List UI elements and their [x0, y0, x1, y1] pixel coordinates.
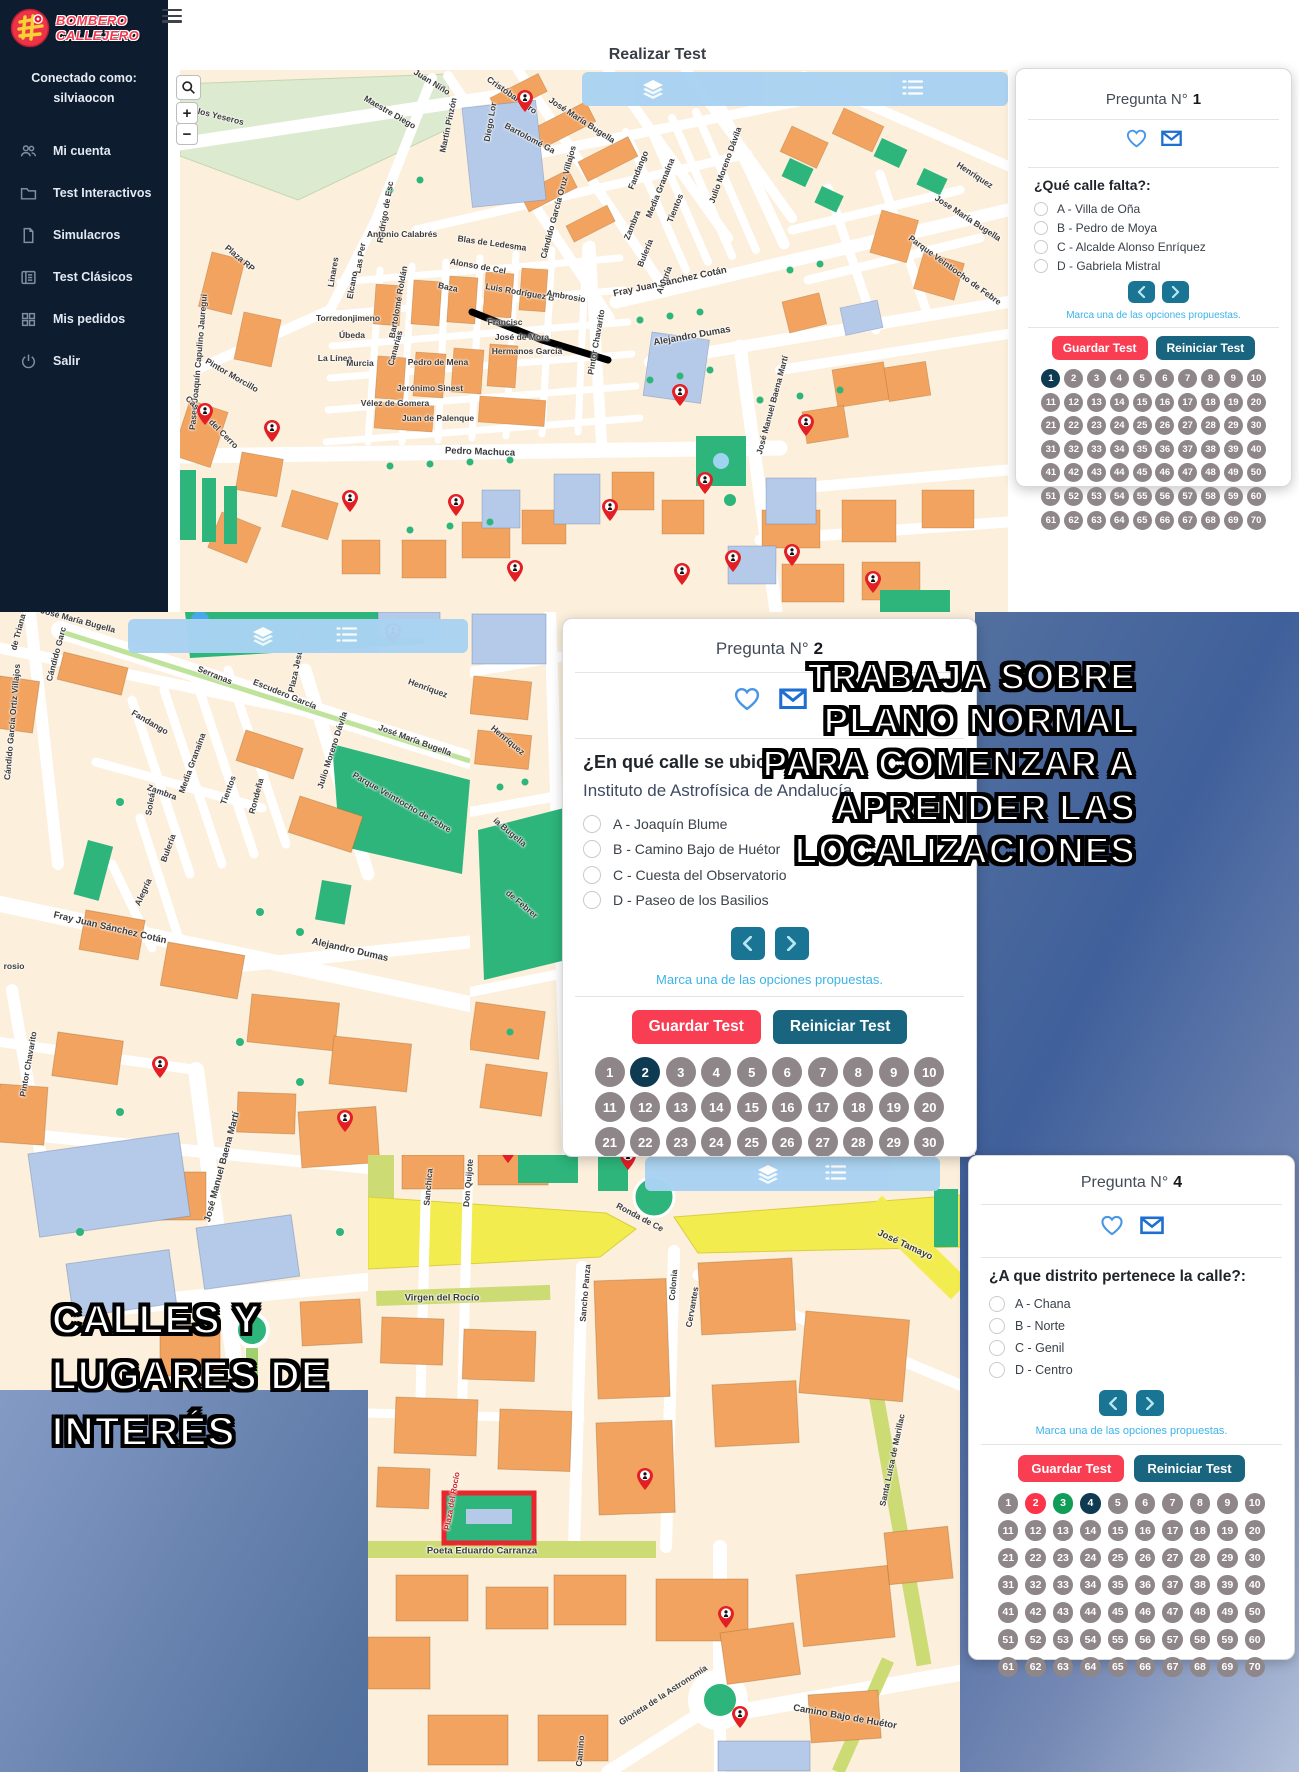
question-number-bubble[interactable]: 58	[1190, 1629, 1211, 1650]
radio-icon[interactable]	[583, 866, 601, 884]
option-label: D - Gabriela Mistral	[1057, 259, 1160, 273]
headline-line: PARA COMENZAR A	[763, 742, 1136, 786]
question-number-bubble[interactable]: 42	[1025, 1602, 1046, 1623]
question-number-bubble[interactable]: 5	[1133, 369, 1152, 388]
answer-option[interactable]: D - Paseo de los Basilios	[583, 888, 976, 914]
radio-icon[interactable]	[1034, 202, 1048, 216]
question-number-bubble[interactable]: 9	[1217, 1493, 1238, 1514]
question-number-bubble[interactable]: 69	[1224, 511, 1243, 530]
reset-test-button[interactable]: Reiniciar Test	[773, 1010, 908, 1044]
question-number-bubble[interactable]: 33	[1087, 440, 1106, 459]
question-number-bubble[interactable]: 33	[1053, 1575, 1074, 1596]
question-number-bubble[interactable]: 53	[1087, 487, 1106, 506]
question-number-bubble[interactable]: 57	[1178, 487, 1197, 506]
question-number-bubble[interactable]: 23	[1053, 1548, 1074, 1569]
question-list-icon[interactable]	[825, 1164, 847, 1184]
sidebar-item-simulacros[interactable]: Simulacros	[0, 214, 168, 256]
favorite-icon[interactable]	[733, 687, 761, 711]
question-number-bubble[interactable]: 34	[1080, 1575, 1101, 1596]
question-number-bubble[interactable]: 30	[1245, 1548, 1266, 1569]
radio-icon[interactable]	[989, 1362, 1005, 1378]
question-number-bubble[interactable]: 47	[1162, 1602, 1183, 1623]
question-number-bubble[interactable]: 17	[1178, 393, 1197, 412]
question-number-bubble[interactable]: 15	[1108, 1520, 1129, 1541]
question-number-bubble[interactable]: 9	[879, 1057, 909, 1087]
question-number-bubble[interactable]: 2	[630, 1057, 660, 1087]
question-number-bubble[interactable]: 20	[914, 1092, 944, 1122]
question-number-bubble[interactable]: 2	[1064, 369, 1083, 388]
question-number-bubble[interactable]: 65	[1133, 511, 1152, 530]
question-number-bubble[interactable]: 16	[1135, 1520, 1156, 1541]
favorite-icon[interactable]	[1100, 1215, 1124, 1236]
map-art	[368, 1155, 960, 1772]
radio-icon[interactable]	[1034, 221, 1048, 235]
street-label: Antonio Calabrés	[367, 229, 437, 239]
question-number-bubble[interactable]: 13	[666, 1092, 696, 1122]
question-number-bubble[interactable]: 59	[1217, 1629, 1238, 1650]
question-number-bubble[interactable]: 50	[1245, 1602, 1266, 1623]
question-number-bubble[interactable]: 28	[1190, 1548, 1211, 1569]
question-number-bubble[interactable]: 24	[1080, 1548, 1101, 1569]
poi-marker[interactable]	[718, 1606, 734, 1628]
question-number-bubble[interactable]: 11	[595, 1092, 625, 1122]
connected-as: Conectado como: silviaocon	[0, 68, 168, 108]
question-number-bubble[interactable]: 1	[595, 1057, 625, 1087]
question-number-bubble[interactable]: 16	[772, 1092, 802, 1122]
question-number-bubble[interactable]: 48	[1201, 463, 1220, 482]
question-number-bubble[interactable]: 23	[666, 1127, 696, 1157]
question-number-bubble[interactable]: 70	[1247, 511, 1266, 530]
answer-option[interactable]: B - Norte	[989, 1315, 1294, 1337]
question-number-bubble[interactable]: 48	[1190, 1602, 1211, 1623]
question-number-bubble[interactable]: 12	[1064, 393, 1083, 412]
layers-icon[interactable]	[757, 1164, 779, 1184]
question-number-bubble[interactable]: 10	[1245, 1493, 1266, 1514]
question-number-bubble[interactable]: 2	[1025, 1493, 1046, 1514]
map-canvas-bottom[interactable]: Ronda de CeJosé TamayoSanchicaDon Quijot…	[368, 1155, 960, 1772]
question-number-bubble[interactable]: 41	[1041, 463, 1060, 482]
question-number-bubble[interactable]: 43	[1087, 463, 1106, 482]
poi-marker[interactable]	[672, 384, 688, 406]
question-number-bubble[interactable]: 54	[1110, 487, 1129, 506]
question-number-bubble[interactable]: 49	[1224, 463, 1243, 482]
question-number-bubble[interactable]: 19	[879, 1092, 909, 1122]
question-number-bubble[interactable]: 11	[1041, 393, 1060, 412]
street-label: Hermanos García	[492, 346, 562, 356]
poi-marker[interactable]	[448, 494, 464, 516]
sidebar-item-label: Simulacros	[53, 228, 120, 242]
save-test-button[interactable]: Guardar Test	[1018, 1455, 1124, 1482]
brand-text: BOMBERO CALLEJERO	[56, 13, 139, 43]
question-number-bubble[interactable]: 10	[914, 1057, 944, 1087]
question-number-bubble[interactable]: 55	[1133, 487, 1152, 506]
question-number-bubble[interactable]: 7	[1178, 369, 1197, 388]
question-number-bubble[interactable]: 64	[1080, 1657, 1101, 1678]
headline-line: INTERÉS	[52, 1404, 329, 1460]
option-label: D - Centro	[1015, 1363, 1073, 1377]
question-number-bubble[interactable]: 5	[737, 1057, 767, 1087]
question-panel-1: Pregunta N°1 ¿Qué calle falta?: A - Vill…	[1015, 68, 1292, 487]
question-number-bubble[interactable]: 21	[595, 1127, 625, 1157]
question-number-bubble[interactable]: 49	[1217, 1602, 1238, 1623]
sidebar-item-label: Test Interactivos	[53, 186, 151, 200]
question-number-bubble[interactable]: 5	[1108, 1493, 1129, 1514]
save-test-button[interactable]: Guardar Test	[632, 1010, 761, 1044]
question-number-bubble[interactable]: 63	[1053, 1657, 1074, 1678]
question-number-bubble[interactable]: 61	[1041, 511, 1060, 530]
question-number-bubble[interactable]: 14	[1080, 1520, 1101, 1541]
poi-marker[interactable]	[342, 490, 358, 512]
question-number-bubble[interactable]: 47	[1178, 463, 1197, 482]
question-number-bubble[interactable]: 7	[1162, 1493, 1183, 1514]
answer-option[interactable]: D - Centro	[989, 1359, 1294, 1381]
question-number-bubble[interactable]: 8	[1201, 369, 1220, 388]
question-number-bubble[interactable]: 64	[1110, 511, 1129, 530]
question-number-bubble[interactable]: 9	[1224, 369, 1243, 388]
poi-marker[interactable]	[637, 1468, 653, 1490]
headline-line: CALLES Y	[52, 1292, 329, 1348]
question-number-bubble[interactable]: 13	[1087, 393, 1106, 412]
question-number-bubble[interactable]: 16	[1155, 393, 1174, 412]
question-number-bubble[interactable]: 6	[1135, 1493, 1156, 1514]
question-number-bubble[interactable]: 14	[1110, 393, 1129, 412]
question-number-bubble[interactable]: 34	[1110, 440, 1129, 459]
question-number-bubble[interactable]: 6	[772, 1057, 802, 1087]
question-number-bubble[interactable]: 37	[1162, 1575, 1183, 1596]
sidebar-item-label: Test Clásicos	[53, 270, 133, 284]
question-number-bubble[interactable]: 1	[1041, 369, 1060, 388]
question-number-bubble[interactable]: 36	[1135, 1575, 1156, 1596]
sidebar: BOMBERO CALLEJERO Conectado como: silvia…	[0, 0, 168, 612]
question-number-bubble[interactable]: 59	[1224, 487, 1243, 506]
question-number-bubble[interactable]: 22	[1025, 1548, 1046, 1569]
question-number-bubble[interactable]: 44	[1110, 463, 1129, 482]
question-number-bubble[interactable]: 68	[1190, 1657, 1211, 1678]
question-number-bubble[interactable]: 27	[1162, 1548, 1183, 1569]
question-number-bubble[interactable]: 11	[998, 1520, 1019, 1541]
street-label: Pedro de Mena	[408, 357, 468, 367]
prev-question-button[interactable]	[1128, 281, 1155, 303]
question-number-bubble[interactable]: 63	[1087, 511, 1106, 530]
question-number-bubble[interactable]: 38	[1201, 440, 1220, 459]
radio-icon[interactable]	[1034, 240, 1048, 254]
question-number-bubble[interactable]: 31	[1041, 440, 1060, 459]
answer-option[interactable]: A - Villa de Oña	[1034, 199, 1291, 218]
question-number-bubble[interactable]: 12	[630, 1092, 660, 1122]
page-title: Realizar Test	[168, 46, 1147, 64]
reset-test-button[interactable]: Reiniciar Test	[1156, 336, 1256, 360]
logo-icon	[10, 8, 50, 48]
question-number-bubble[interactable]: 10	[1247, 369, 1266, 388]
zoom-in-button[interactable]: +	[176, 102, 198, 124]
file-icon	[20, 227, 37, 244]
radio-icon[interactable]	[583, 891, 601, 909]
question-number-bubble[interactable]: 22	[630, 1127, 660, 1157]
question-list-icon[interactable]	[902, 79, 924, 99]
sidebar-item-mis-pedidos[interactable]: Mis pedidos	[0, 298, 168, 340]
question-number-bubble[interactable]: 65	[1108, 1657, 1129, 1678]
question-number-bubble[interactable]: 28	[1201, 416, 1220, 435]
headline-line: LUGARES DE	[52, 1348, 329, 1404]
question-number-bubble[interactable]: 60	[1245, 1629, 1266, 1650]
question-number-bubble[interactable]: 30	[1247, 416, 1266, 435]
listalt-icon	[20, 269, 37, 286]
question-number-bubble[interactable]: 66	[1155, 511, 1174, 530]
collage-page: BOMBERO CALLEJERO Conectado como: silvia…	[0, 0, 1299, 1772]
question-number-bubble[interactable]: 7	[808, 1057, 838, 1087]
folder-icon	[20, 185, 37, 202]
question-number-bubble[interactable]: 20	[1247, 393, 1266, 412]
next-question-button[interactable]	[1136, 1390, 1164, 1416]
question-number-bubble[interactable]: 60	[1247, 487, 1266, 506]
question-number-bubble[interactable]: 58	[1201, 487, 1220, 506]
question-number-bubble[interactable]: 54	[1080, 1629, 1101, 1650]
poi-marker[interactable]	[152, 1056, 168, 1078]
option-label: C - Genil	[1015, 1341, 1064, 1355]
question-number-bubble[interactable]: 23	[1087, 416, 1106, 435]
question-number-bubble[interactable]: 26	[1155, 416, 1174, 435]
sidebar-item-test-clásicos[interactable]: Test Clásicos	[0, 256, 168, 298]
radio-icon[interactable]	[989, 1318, 1005, 1334]
street-label: Jerónimo Sinest	[397, 383, 463, 393]
question-number-bubble[interactable]: 39	[1217, 1575, 1238, 1596]
question-number-bubble[interactable]: 40	[1247, 440, 1266, 459]
poi-marker[interactable]	[507, 560, 523, 582]
layers-icon[interactable]	[642, 79, 664, 99]
question-number-bubble[interactable]: 4	[1080, 1493, 1101, 1514]
poi-marker[interactable]	[264, 420, 280, 442]
question-number-bubble[interactable]: 19	[1217, 1520, 1238, 1541]
map-search-button[interactable]	[176, 75, 201, 100]
question-number-bubble[interactable]: 53	[1053, 1629, 1074, 1650]
question-number-bubble[interactable]: 32	[1025, 1575, 1046, 1596]
answer-option[interactable]: A - Chana	[989, 1293, 1294, 1315]
layers-icon[interactable]	[252, 626, 274, 646]
question-number-bubble[interactable]: 37	[1178, 440, 1197, 459]
question-number-bubble[interactable]: 43	[1053, 1602, 1074, 1623]
question-number-bubble[interactable]: 3	[666, 1057, 696, 1087]
mail-icon[interactable]	[1140, 1215, 1164, 1236]
poi-marker[interactable]	[674, 563, 690, 585]
question-number-bubble[interactable]: 24	[1110, 416, 1129, 435]
question-number-bubble[interactable]: 19	[1224, 393, 1243, 412]
question-number-bubble[interactable]: 27	[808, 1127, 838, 1157]
question-number-bubble[interactable]: 46	[1135, 1602, 1156, 1623]
prev-question-button[interactable]	[731, 927, 765, 960]
question-number-bubble[interactable]: 29	[1217, 1548, 1238, 1569]
question-number-bubble[interactable]: 62	[1064, 511, 1083, 530]
question-number-bubble[interactable]: 18	[1190, 1520, 1211, 1541]
question-number-bubble[interactable]: 67	[1178, 511, 1197, 530]
question-number-bubble[interactable]: 70	[1245, 1657, 1266, 1678]
question-number-bubble[interactable]: 51	[1041, 487, 1060, 506]
radio-icon[interactable]	[1034, 259, 1048, 273]
prev-question-button[interactable]	[1099, 1390, 1127, 1416]
poi-marker[interactable]	[620, 1155, 636, 1170]
question-number-bubble[interactable]: 62	[1025, 1657, 1046, 1678]
question-number-bubble[interactable]: 4	[701, 1057, 731, 1087]
option-label: B - Camino Bajo de Huétor	[613, 841, 780, 857]
question-number-bubble[interactable]: 18	[1201, 393, 1220, 412]
question-text: ¿A que distrito pertenece la calle?:	[989, 1268, 1294, 1286]
question-number-bubble[interactable]: 69	[1217, 1657, 1238, 1678]
option-label: A - Chana	[1015, 1297, 1071, 1311]
option-label: C - Alcalde Alonso Enríquez	[1057, 240, 1206, 254]
question-number-bubble[interactable]: 12	[1025, 1520, 1046, 1541]
poi-marker[interactable]	[500, 1155, 516, 1163]
question-panel-title: Pregunta N°1	[1016, 91, 1291, 108]
question-number-bubble[interactable]: 45	[1133, 463, 1152, 482]
poi-marker[interactable]	[602, 499, 618, 521]
question-number-bubble[interactable]: 35	[1133, 440, 1152, 459]
question-number-bubble[interactable]: 14	[701, 1092, 731, 1122]
hint-text: Marca una de las opciones propuestas.	[1016, 310, 1291, 321]
question-number-bubble[interactable]: 57	[1162, 1629, 1183, 1650]
question-number-bubble[interactable]: 20	[1245, 1520, 1266, 1541]
question-number-bubble[interactable]: 56	[1155, 487, 1174, 506]
app-logo[interactable]: BOMBERO CALLEJERO	[0, 0, 168, 56]
poi-marker[interactable]	[697, 472, 713, 494]
question-number-bubble[interactable]: 61	[998, 1657, 1019, 1678]
radio-icon[interactable]	[989, 1340, 1005, 1356]
question-number-bubble[interactable]: 26	[1135, 1548, 1156, 1569]
reset-test-button[interactable]: Reiniciar Test	[1134, 1455, 1244, 1482]
question-number-bubble[interactable]: 68	[1201, 511, 1220, 530]
headline-line: TRABAJA SOBRE	[763, 655, 1136, 699]
poi-marker[interactable]	[732, 1706, 748, 1728]
street-label: Poeta Eduardo Carranza	[427, 1546, 537, 1557]
zoom-out-button[interactable]: −	[176, 123, 198, 145]
question-number-bubble[interactable]: 51	[998, 1629, 1019, 1650]
question-number-bubble[interactable]: 31	[998, 1575, 1019, 1596]
question-number-bubble[interactable]: 41	[998, 1602, 1019, 1623]
question-number-bubble[interactable]: 24	[701, 1127, 731, 1157]
sidebar-item-label: Mis pedidos	[53, 312, 125, 326]
question-number-bubble[interactable]: 29	[1224, 416, 1243, 435]
map-toolbar	[128, 619, 468, 653]
answer-option[interactable]: D - Gabriela Mistral	[1034, 256, 1291, 275]
question-number-bubble[interactable]: 50	[1247, 463, 1266, 482]
question-number-bubble[interactable]: 55	[1108, 1629, 1129, 1650]
question-number-bubble[interactable]: 21	[1041, 416, 1060, 435]
question-number-bubble[interactable]: 38	[1190, 1575, 1211, 1596]
question-number-bubble[interactable]: 13	[1053, 1520, 1074, 1541]
street-label: Murcia	[346, 358, 373, 368]
question-number-bubble[interactable]: 22	[1064, 416, 1083, 435]
mail-icon[interactable]	[1161, 129, 1182, 148]
street-label: Torredonjimeno	[316, 313, 380, 323]
radio-icon[interactable]	[583, 840, 601, 858]
street-label: Virgen del Rocío	[405, 1293, 480, 1304]
question-number-bubble[interactable]: 39	[1224, 440, 1243, 459]
question-number-bubble[interactable]: 67	[1162, 1657, 1183, 1678]
answer-option[interactable]: B - Pedro de Moya	[1034, 218, 1291, 237]
question-number-bubble[interactable]: 45	[1108, 1602, 1129, 1623]
sidebar-item-salir[interactable]: Salir	[0, 340, 168, 382]
question-number-bubble[interactable]: 25	[1108, 1548, 1129, 1569]
question-number-bubble[interactable]: 66	[1135, 1657, 1156, 1678]
question-number-bubble[interactable]: 1	[998, 1493, 1019, 1514]
headline-trabaja: TRABAJA SOBREPLANO NORMALPARA COMENZAR A…	[763, 655, 1136, 873]
sidebar-menu: Mi cuentaTest InteractivosSimulacrosTest…	[0, 130, 168, 382]
question-number-bubble[interactable]: 36	[1155, 440, 1174, 459]
question-number-bubble[interactable]: 26	[772, 1127, 802, 1157]
question-number-bubble[interactable]: 17	[1162, 1520, 1183, 1541]
question-text: ¿Qué calle falta?:	[1034, 177, 1291, 193]
answer-option[interactable]: C - Genil	[989, 1337, 1294, 1359]
question-number-bubble[interactable]: 18	[843, 1092, 873, 1122]
poi-marker[interactable]	[517, 90, 533, 112]
question-number-bubble[interactable]: 40	[1245, 1575, 1266, 1596]
sidebar-item-mi-cuenta[interactable]: Mi cuenta	[0, 130, 168, 172]
question-number-bubble[interactable]: 56	[1135, 1629, 1156, 1650]
poi-marker[interactable]	[784, 544, 800, 566]
poi-marker[interactable]	[865, 571, 881, 593]
question-number-bubble[interactable]: 44	[1080, 1602, 1101, 1623]
users-icon	[20, 143, 37, 160]
question-number-bubble[interactable]: 8	[1190, 1493, 1211, 1514]
question-number-bubble[interactable]: 15	[737, 1092, 767, 1122]
question-number-bubble[interactable]: 27	[1178, 416, 1197, 435]
option-label: D - Paseo de los Basilios	[613, 892, 769, 908]
question-number-bubble[interactable]: 25	[737, 1127, 767, 1157]
question-number-bubble[interactable]: 25	[1133, 416, 1152, 435]
question-number-bubble[interactable]: 29	[879, 1127, 909, 1157]
question-number-bubble[interactable]: 28	[843, 1127, 873, 1157]
question-number-bubble[interactable]: 3	[1053, 1493, 1074, 1514]
radio-icon[interactable]	[989, 1296, 1005, 1312]
map-canvas-main[interactable]: de los YeserosJuan NiñoMaestre DiegoMart…	[180, 70, 1008, 612]
question-number-bubble[interactable]: 8	[843, 1057, 873, 1087]
map-toolbar	[582, 72, 1008, 106]
answer-option[interactable]: C - Alcalde Alonso Enríquez	[1034, 237, 1291, 256]
question-number-bubble[interactable]: 46	[1155, 463, 1174, 482]
question-panel-title: Pregunta N°4	[969, 1174, 1294, 1192]
question-list-icon[interactable]	[336, 626, 358, 646]
radio-icon[interactable]	[583, 815, 601, 833]
option-label: B - Pedro de Moya	[1057, 221, 1157, 235]
question-number-bubble[interactable]: 30	[914, 1127, 944, 1157]
save-test-button[interactable]: Guardar Test	[1052, 336, 1148, 360]
street-label: Juan de Palenque	[402, 413, 474, 423]
option-label: C - Cuesta del Observatorio	[613, 867, 787, 883]
street-label: Vélez de Gomera	[361, 398, 430, 408]
question-number-bubble[interactable]: 15	[1133, 393, 1152, 412]
poi-marker[interactable]	[725, 550, 741, 572]
question-number-bubble[interactable]: 35	[1108, 1575, 1129, 1596]
poi-marker[interactable]	[197, 403, 213, 425]
question-number-bubble[interactable]: 3	[1087, 369, 1106, 388]
question-number-bubble[interactable]: 52	[1025, 1629, 1046, 1650]
question-number-bubble[interactable]: 6	[1155, 369, 1174, 388]
question-number-bubble[interactable]: 42	[1064, 463, 1083, 482]
favorite-icon[interactable]	[1126, 129, 1147, 148]
sidebar-item-test-interactivos[interactable]: Test Interactivos	[0, 172, 168, 214]
next-question-button[interactable]	[775, 927, 809, 960]
menu-toggle-icon[interactable]	[162, 9, 182, 25]
question-number-bubble[interactable]: 21	[998, 1548, 1019, 1569]
option-label: A - Villa de Oña	[1057, 202, 1140, 216]
question-number-bubble[interactable]: 52	[1064, 487, 1083, 506]
street-label: Úbeda	[339, 330, 365, 340]
poi-marker[interactable]	[337, 1110, 353, 1132]
question-number-bubble[interactable]: 17	[808, 1092, 838, 1122]
poi-marker[interactable]	[798, 414, 814, 436]
headline-line: PLANO NORMAL	[763, 699, 1136, 743]
question-number-bubble[interactable]: 32	[1064, 440, 1083, 459]
next-question-button[interactable]	[1162, 281, 1189, 303]
question-number-bubble[interactable]: 4	[1110, 369, 1129, 388]
